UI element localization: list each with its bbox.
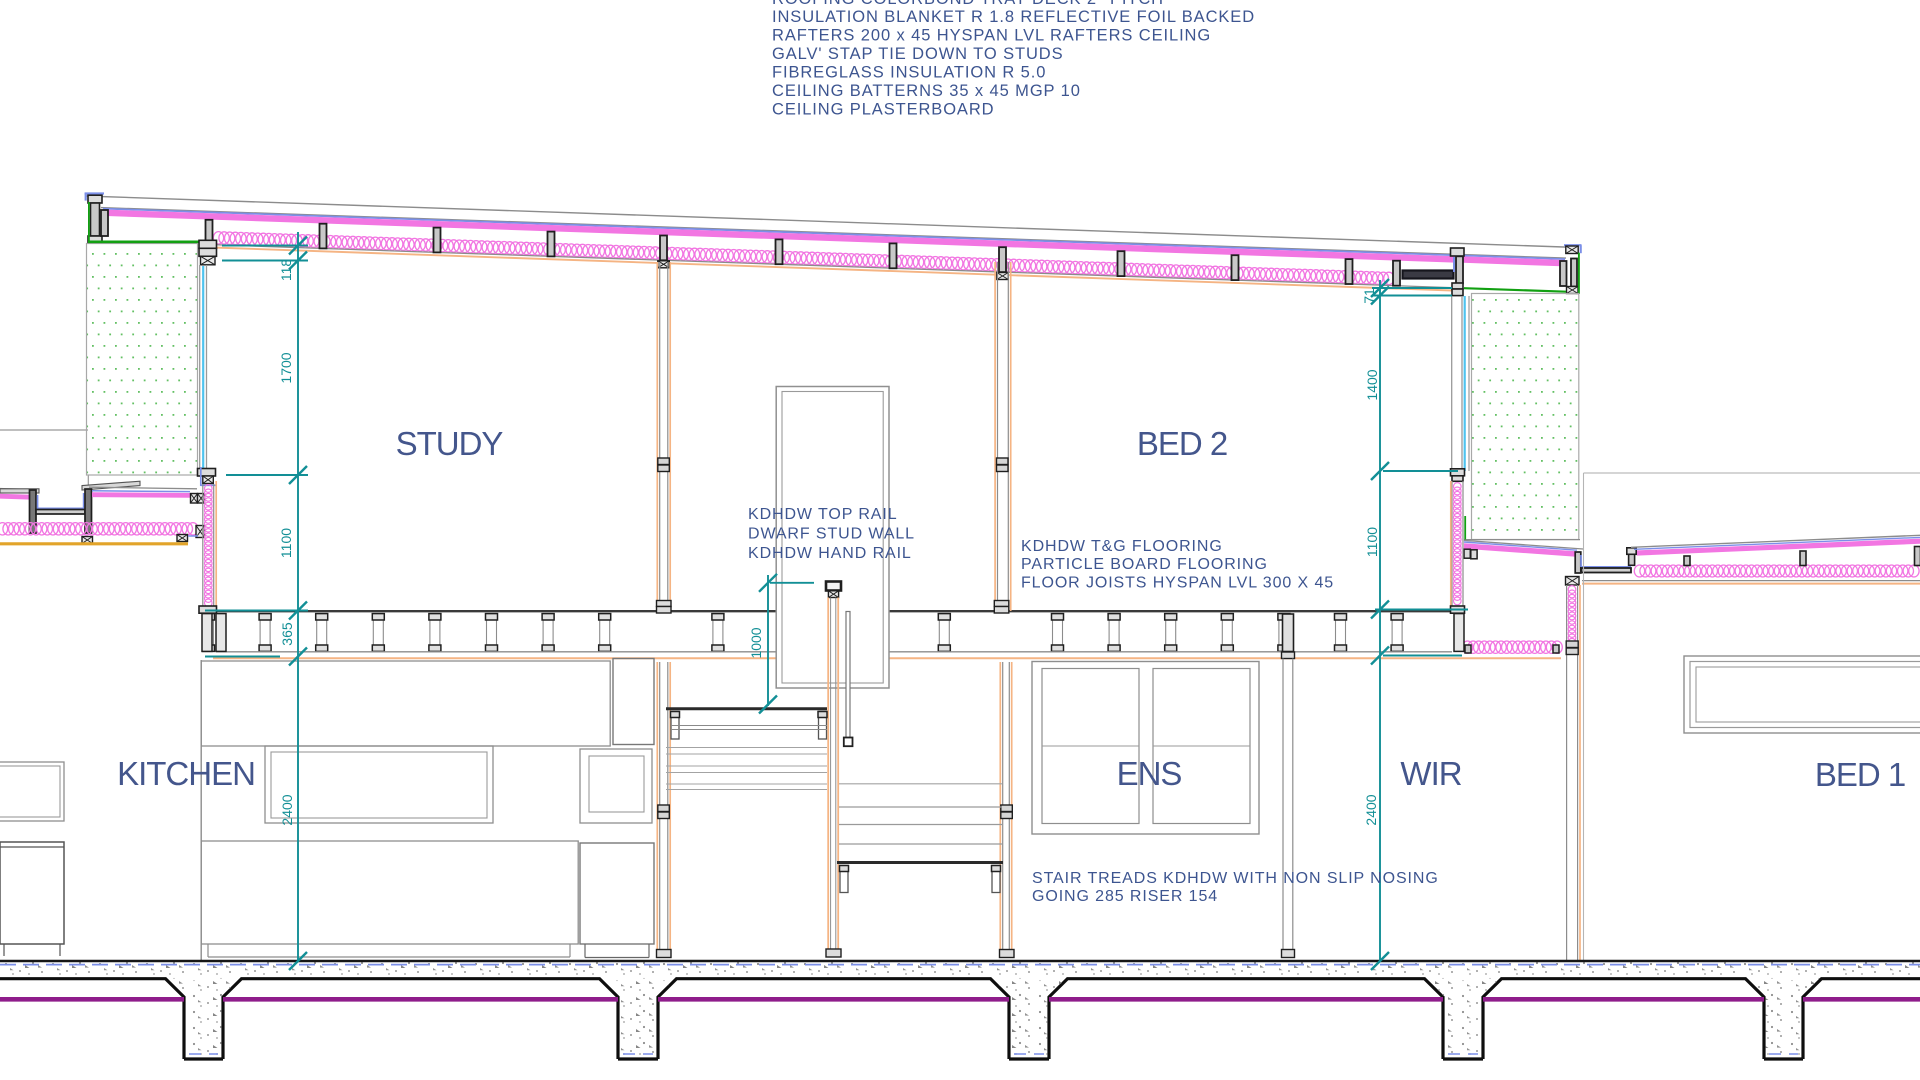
svg-text:1100: 1100 — [1364, 527, 1380, 557]
svg-text:2400: 2400 — [279, 794, 295, 825]
svg-text:KDHDW T&G FLOORING: KDHDW T&G FLOORING — [1021, 538, 1223, 555]
svg-text:FIBREGLASS INSULATION R 5.0: FIBREGLASS INSULATION R 5.0 — [772, 64, 1046, 82]
svg-text:2400: 2400 — [1363, 794, 1379, 825]
svg-text:1400: 1400 — [1364, 369, 1380, 400]
svg-text:KITCHEN: KITCHEN — [117, 755, 255, 792]
svg-text:1100: 1100 — [278, 528, 294, 558]
svg-text:BED 1: BED 1 — [1815, 756, 1905, 793]
svg-text:GOING 285 RISER 154: GOING 285 RISER 154 — [1032, 888, 1218, 905]
svg-text:365: 365 — [279, 622, 295, 646]
svg-text:PARTICLE BOARD FLOORING: PARTICLE BOARD FLOORING — [1021, 556, 1268, 573]
svg-text:GALV' STAP TIE DOWN TO STUDS: GALV' STAP TIE DOWN TO STUDS — [772, 45, 1064, 63]
svg-text:KDHDW TOP RAIL: KDHDW TOP RAIL — [748, 506, 898, 523]
svg-text:CEILING BATTERNS 35 x 45 MGP 1: CEILING BATTERNS 35 x 45 MGP 10 — [772, 82, 1081, 100]
svg-text:RAFTERS 200 x 45 HYSPAN LVL RA: RAFTERS 200 x 45 HYSPAN LVL RAFTERS CEIL… — [772, 27, 1211, 45]
svg-text:DWARF STUD WALL: DWARF STUD WALL — [748, 526, 915, 543]
svg-text:118: 118 — [278, 259, 294, 282]
svg-text:STAIR TREADS KDHDW WITH NON SL: STAIR TREADS KDHDW WITH NON SLIP NOSING — [1032, 870, 1439, 887]
svg-text:71: 71 — [1361, 288, 1377, 304]
svg-text:INSULATION BLANKET R 1.8 REFLE: INSULATION BLANKET R 1.8 REFLECTIVE FOIL… — [772, 8, 1255, 26]
svg-text:FLOOR JOISTS HYSPAN LVL 300 X: FLOOR JOISTS HYSPAN LVL 300 X 45 — [1021, 575, 1334, 592]
svg-text:1000: 1000 — [748, 627, 764, 658]
svg-text:ROOFING COLORBOND TRAY DECK 2°: ROOFING COLORBOND TRAY DECK 2° PITCH — [772, 0, 1164, 8]
svg-text:BED 2: BED 2 — [1137, 425, 1227, 462]
svg-text:CEILING PLASTERBOARD: CEILING PLASTERBOARD — [772, 101, 994, 119]
svg-text:ENS: ENS — [1117, 755, 1182, 792]
svg-text:KDHDW HAND RAIL: KDHDW HAND RAIL — [748, 545, 912, 562]
svg-text:1700: 1700 — [278, 352, 294, 383]
svg-text:WIR: WIR — [1400, 755, 1461, 792]
svg-text:STUDY: STUDY — [396, 425, 504, 462]
